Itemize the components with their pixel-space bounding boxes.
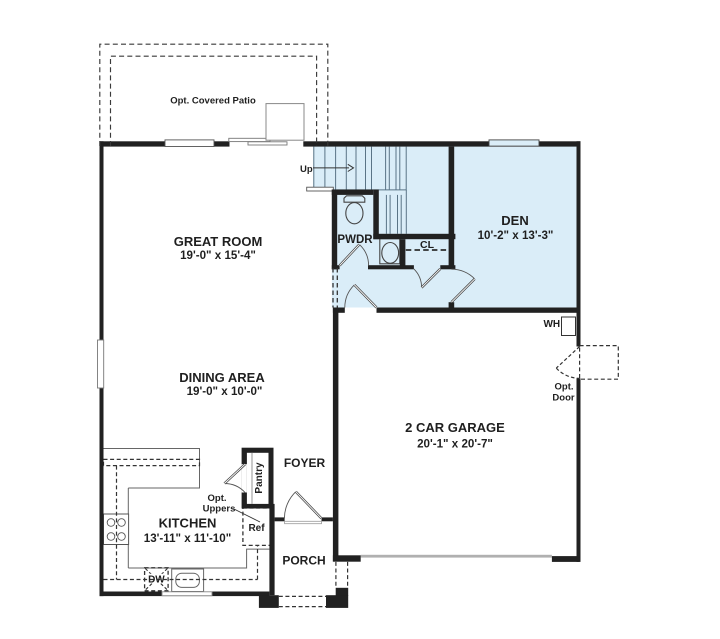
svg-text:20'-1" x 20'-7": 20'-1" x 20'-7" xyxy=(417,438,493,451)
svg-text:2 CAR GARAGE: 2 CAR GARAGE xyxy=(405,420,505,435)
svg-text:WH: WH xyxy=(543,319,560,330)
svg-text:PWDR: PWDR xyxy=(337,234,373,246)
svg-text:Door: Door xyxy=(552,393,574,404)
svg-text:Opt.: Opt. xyxy=(555,382,574,393)
svg-text:13'-11" x 11'-10": 13'-11" x 11'-10" xyxy=(144,532,231,545)
svg-text:Up: Up xyxy=(300,164,313,175)
svg-text:GREAT ROOM: GREAT ROOM xyxy=(174,234,263,249)
svg-text:DINING AREA: DINING AREA xyxy=(179,370,265,385)
svg-text:PORCH: PORCH xyxy=(282,554,325,568)
svg-text:Pantry: Pantry xyxy=(254,462,265,494)
svg-text:Uppers: Uppers xyxy=(203,503,236,514)
svg-text:FOYER: FOYER xyxy=(284,456,326,470)
svg-text:Opt. Covered Patio: Opt. Covered Patio xyxy=(170,96,256,107)
svg-text:Ref: Ref xyxy=(248,523,265,534)
svg-text:10'-2" x 13'-3": 10'-2" x 13'-3" xyxy=(478,229,554,242)
svg-text:KITCHEN: KITCHEN xyxy=(159,516,217,531)
svg-text:DEN: DEN xyxy=(501,213,528,228)
svg-text:19'-0" x 10'-0": 19'-0" x 10'-0" xyxy=(187,385,263,398)
svg-text:19'-0" x 15'-4": 19'-0" x 15'-4" xyxy=(180,249,256,262)
svg-text:CL: CL xyxy=(420,239,435,251)
